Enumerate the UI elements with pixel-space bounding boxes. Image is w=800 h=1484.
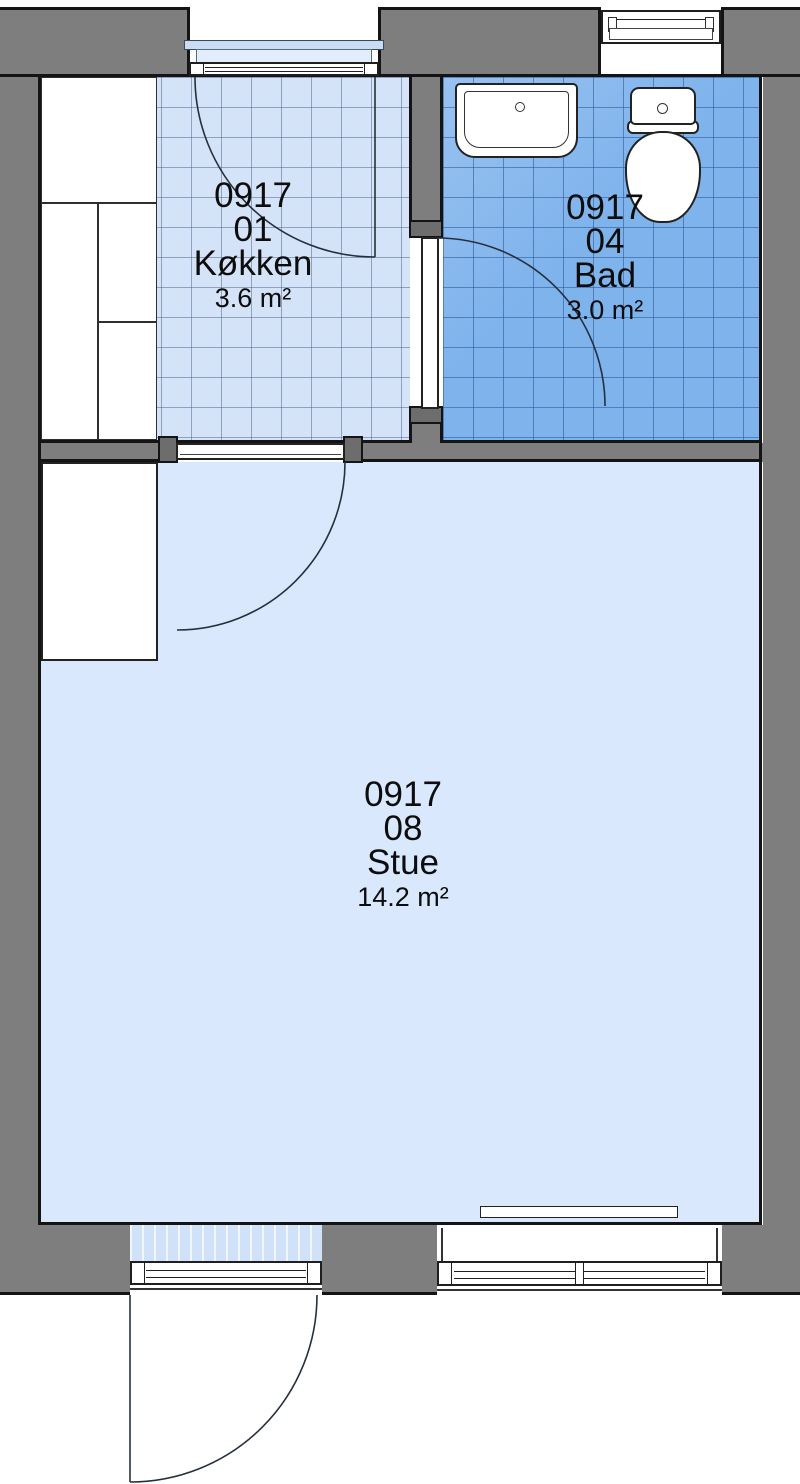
kitchen-cabinet-top — [41, 77, 157, 203]
stue-window-outer-sill — [437, 1289, 722, 1291]
toilet-flush-button-icon — [657, 103, 668, 114]
floor-plan: 0917 01 Køkken 3.6 m² 0917 04 Bad 3.0 m²… — [0, 0, 800, 1484]
bath-door-leaf — [421, 237, 439, 409]
kitchen-door-leaf — [176, 443, 345, 460]
wall-bottom-left — [0, 1225, 130, 1295]
kitchen-room-code: 0917 — [143, 179, 363, 213]
kitchen-window-sill-inner — [196, 49, 372, 63]
edge-top-outer-3 — [722, 7, 800, 10]
entrance-door-glass — [130, 1225, 322, 1261]
edge-divider-right — [440, 77, 443, 221]
kitchen-room-area: 3.6 m² — [143, 281, 363, 315]
edge-midwall-top-bath — [443, 440, 760, 443]
edge-right-inner — [759, 74, 762, 1225]
edge-top-outer-2 — [378, 7, 600, 10]
edge-bottom-outer-2 — [322, 1292, 437, 1295]
room-label-stue: 0917 08 Stue 14.2 m² — [293, 778, 513, 914]
entrance-threshold-lines — [146, 1270, 306, 1278]
wall-top-left — [0, 7, 190, 77]
stue-window-frame — [437, 1261, 722, 1286]
kitchen-window-glazing — [205, 67, 363, 72]
kitchen-cabinet-lower — [98, 322, 157, 440]
stue-window-mullion — [575, 1263, 584, 1284]
entrance-cap-right — [307, 1263, 320, 1283]
wall-right — [763, 7, 800, 1295]
kitchen-window-cap-right — [364, 64, 377, 74]
stue-window-cap-left — [439, 1263, 452, 1284]
edge-bath-window-jamb-right — [721, 7, 724, 75]
stue-room-area: 14.2 m² — [293, 880, 513, 914]
kitchen-room-name: Køkken — [143, 247, 363, 281]
edge-midwall-bottom-2 — [355, 459, 760, 462]
stue-room-number: 08 — [293, 812, 513, 846]
wall-top-right — [722, 7, 800, 77]
entrance-outer-sill — [130, 1288, 322, 1290]
wall-kitchen-bath-divider — [412, 77, 440, 222]
entrance-door-threshold — [130, 1261, 322, 1285]
wall-bottom-middle — [322, 1225, 437, 1295]
wall-left — [0, 7, 40, 1295]
kitchen-cabinet-tall — [41, 203, 98, 440]
stue-window-jamb-left — [441, 1228, 443, 1261]
wall-top-middle — [378, 7, 600, 77]
sink-drain-icon — [515, 102, 525, 112]
stue-room-name: Stue — [293, 846, 513, 880]
bath-room-code: 0917 — [495, 191, 715, 225]
stue-window-cap-right — [707, 1263, 720, 1284]
bath-room-number: 04 — [495, 225, 715, 259]
kitchen-door-hinge-left — [158, 436, 178, 463]
kitchen-window-cap-left — [191, 64, 204, 74]
entrance-door-swing-arc — [130, 1295, 317, 1482]
edge-bottom-outer-3 — [722, 1292, 800, 1295]
room-label-kitchen: 0917 01 Køkken 3.6 m² — [143, 179, 363, 315]
sink — [455, 83, 578, 158]
bath-door-hinge-top — [409, 220, 443, 238]
kitchen-window-frame — [189, 62, 379, 76]
wall-kitchen-bath-divider-stub — [412, 424, 440, 443]
edge-bottom-outer-1 — [0, 1292, 130, 1295]
kitchen-door-panel-line — [180, 454, 341, 455]
wall-bottom-right — [722, 1225, 800, 1295]
bath-window-sill-box — [609, 28, 713, 40]
edge-divider-left — [409, 77, 412, 221]
kitchen-room-number: 01 — [143, 213, 363, 247]
edge-top-outer-1 — [0, 7, 190, 10]
room-label-bath: 0917 04 Bad 3.0 m² — [495, 191, 715, 327]
kitchen-door-hinge-right — [343, 436, 363, 463]
sink-basin — [464, 91, 569, 148]
bath-room-name: Bad — [495, 259, 715, 293]
radiator — [480, 1206, 678, 1218]
bath-room-area: 3.0 m² — [495, 293, 715, 327]
stue-window-jamb-right — [716, 1228, 718, 1261]
stue-room-code: 0917 — [293, 778, 513, 812]
bath-window-frame — [601, 10, 721, 44]
entrance-cap-left — [132, 1263, 145, 1283]
closet — [41, 462, 158, 661]
